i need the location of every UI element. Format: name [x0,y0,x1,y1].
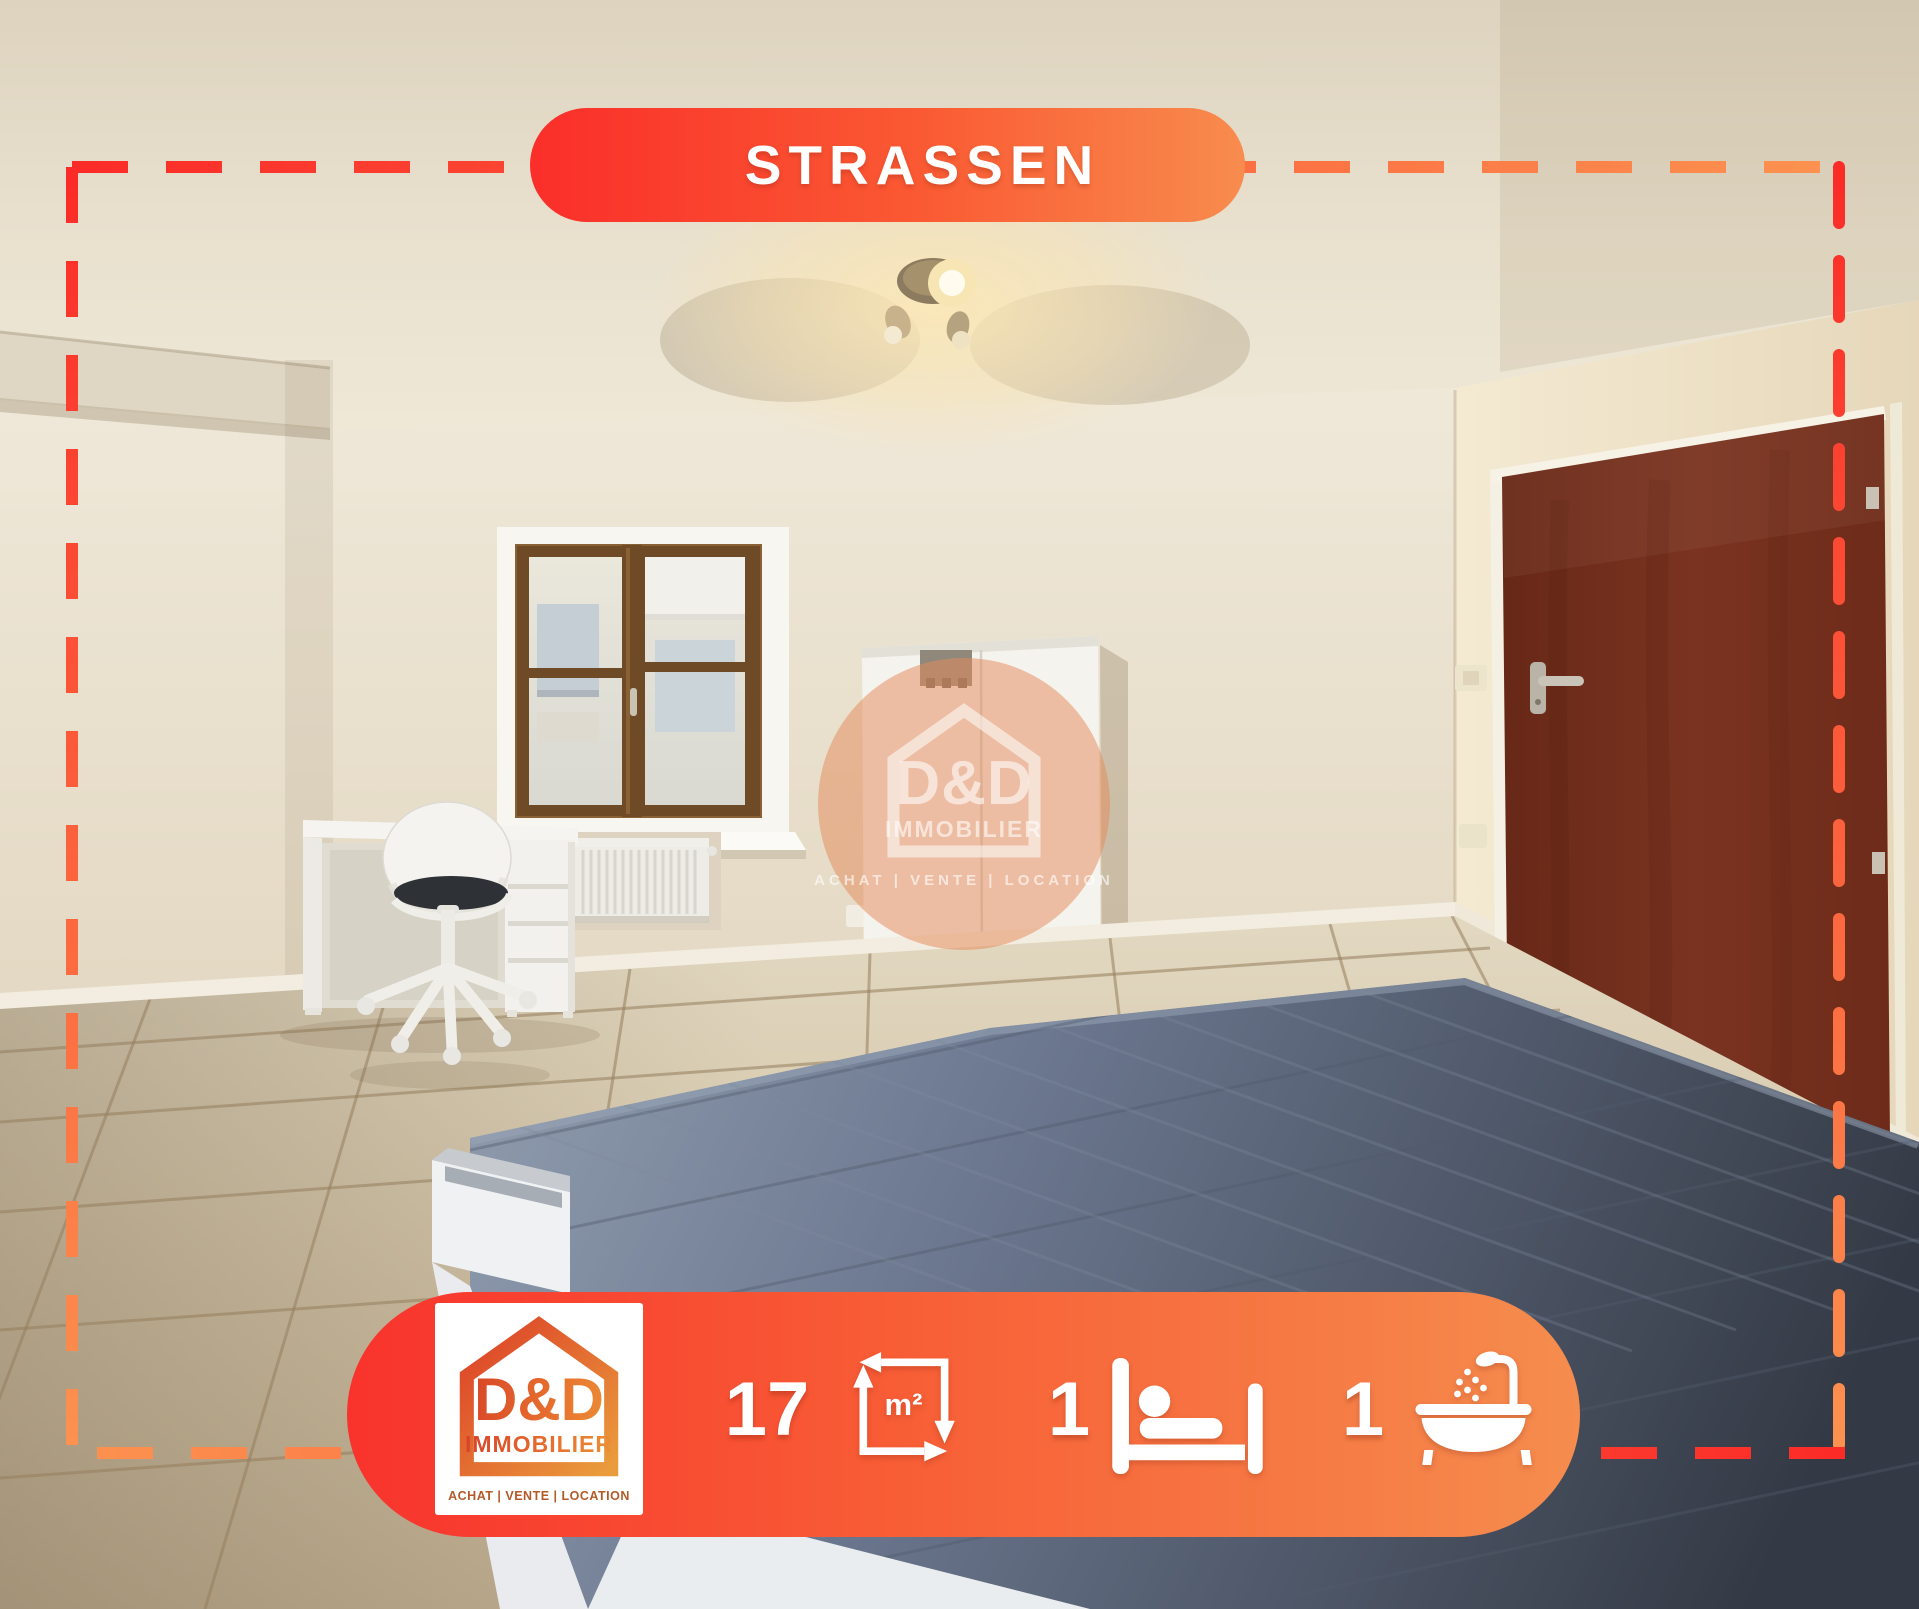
bath-icon [1407,1342,1540,1470]
bathrooms-value: 1 [1313,1372,1413,1448]
area-value: 17 [699,1372,835,1448]
agency-logo-card: D&D IMMOBILIER ACHAT | VENTE | LOCATION [435,1303,643,1515]
location-banner: STRASSEN [530,108,1245,222]
agency-brand-sub: IMMOBILIER [435,1431,643,1458]
agency-tagline: ACHAT | VENTE | LOCATION [435,1489,643,1503]
bedrooms-value: 1 [1019,1372,1119,1448]
area-icon: m² [843,1343,970,1473]
agency-brand: D&D [435,1365,643,1434]
location-label: STRASSEN [745,133,1101,197]
info-banner: D&D IMMOBILIER ACHAT | VENTE | LOCATION … [347,1292,1580,1537]
property-listing-image: D&D IMMOBILIER ACHAT | VENTE | LOCATION … [0,0,1919,1609]
bed-icon [1110,1356,1263,1474]
area-unit-label: m² [843,1387,964,1423]
